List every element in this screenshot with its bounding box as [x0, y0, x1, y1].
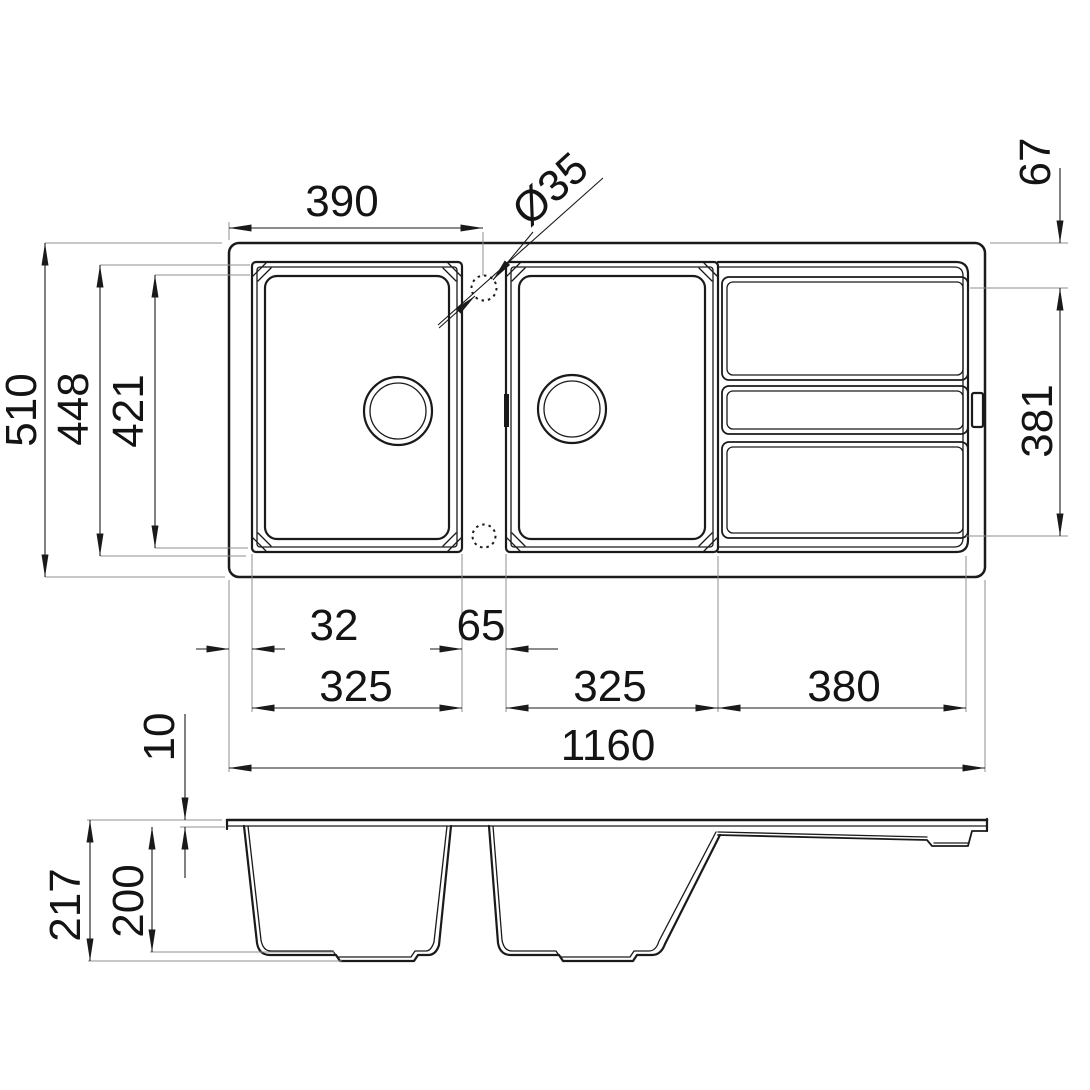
dim-tap-label: Ø35 — [503, 143, 598, 235]
dim-1160: 1160 — [229, 721, 985, 770]
side-view — [227, 819, 987, 961]
dim-10-label: 10 — [135, 713, 184, 762]
bowl1-drain-hole — [364, 377, 432, 445]
dim-32-label: 32 — [310, 601, 359, 650]
deck-overflow-slot — [972, 393, 983, 427]
bowl-2 — [504, 262, 718, 552]
tap-hole-top — [472, 276, 497, 301]
dim-217-label: 217 — [41, 868, 90, 941]
dim-200: 200 — [104, 827, 153, 952]
dim-448: 448 — [49, 265, 100, 556]
dim-325a-label: 325 — [319, 662, 392, 711]
drainer — [718, 262, 983, 552]
bowl1-section — [244, 826, 451, 961]
bowl2-drain-hole — [538, 375, 606, 443]
dim-67: 67 — [1011, 138, 1060, 243]
dim-510: 510 — [0, 243, 46, 577]
dim-217: 217 — [41, 820, 90, 961]
dim-380: 380 — [718, 662, 966, 711]
dim-390: 390 — [229, 177, 483, 228]
dim-1160-label: 1160 — [561, 721, 656, 770]
dim-67-label: 67 — [1011, 138, 1060, 187]
dim-381-label: 381 — [1013, 384, 1062, 457]
top-view — [229, 243, 985, 577]
dim-65-label: 65 — [457, 601, 506, 650]
bowl2-section — [489, 826, 720, 961]
dim-325-bowl1: 325 — [252, 662, 462, 711]
dim-325-bowl2: 325 — [506, 662, 718, 711]
dim-10: 10 — [135, 713, 185, 878]
dim-510-label: 510 — [0, 373, 46, 446]
dim-448-label: 448 — [49, 372, 98, 445]
dim-380-label: 380 — [807, 662, 880, 711]
sink-technical-drawing: 390 Ø35 67 381 510 448 421 32 65 325 — [0, 0, 1090, 1090]
dim-421-label: 421 — [104, 374, 153, 447]
drawing-canvas: 390 Ø35 67 381 510 448 421 32 65 325 — [0, 0, 1090, 1090]
bowl-1 — [252, 262, 462, 552]
tap-hole-bottom — [473, 525, 496, 548]
dim-390-label: 390 — [305, 177, 378, 226]
dim-200-label: 200 — [104, 864, 153, 937]
dim-421: 421 — [104, 275, 155, 548]
dim-325b-label: 325 — [573, 662, 646, 711]
extension-lines — [45, 222, 1068, 961]
dim-32: 32 — [196, 601, 358, 650]
bowl2-overflow-slot — [504, 394, 509, 427]
dim-381: 381 — [1013, 288, 1062, 536]
dim-65: 65 — [430, 601, 558, 650]
